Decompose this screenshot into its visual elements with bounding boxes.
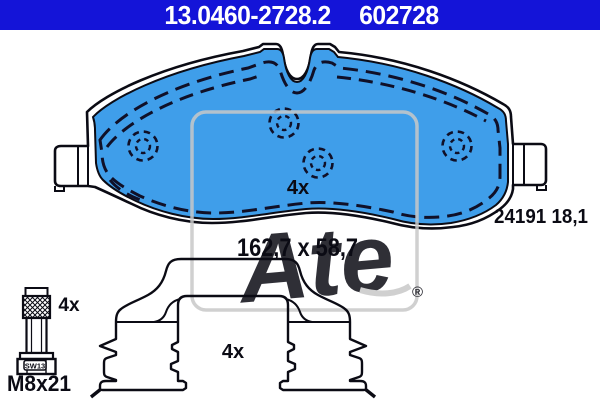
- bolt-knurl-section: [23, 296, 50, 318]
- watermark-brand-text: Ate: [233, 203, 398, 323]
- bolt-drawing: SW13: [18, 288, 56, 374]
- brake-pad-drawing: 4x: [55, 44, 546, 228]
- bolt-head-label: SW13: [25, 362, 45, 371]
- bolt-thread-label: M8x21: [7, 371, 71, 396]
- bolt-tip: [26, 288, 48, 296]
- pad-quantity-label: 4x: [287, 177, 309, 199]
- technical-drawing: 4x Ate ® 162,7 x 58,7 24191 18,1 SW13 4x…: [0, 0, 600, 400]
- wva-number-label: 24191 18,1: [494, 206, 588, 228]
- watermark-registered-mark: ®: [412, 284, 423, 301]
- bolt-shank: [27, 318, 47, 353]
- clip-quantity-label: 4x: [222, 341, 244, 363]
- bolt-quantity-label: 4x: [58, 295, 80, 316]
